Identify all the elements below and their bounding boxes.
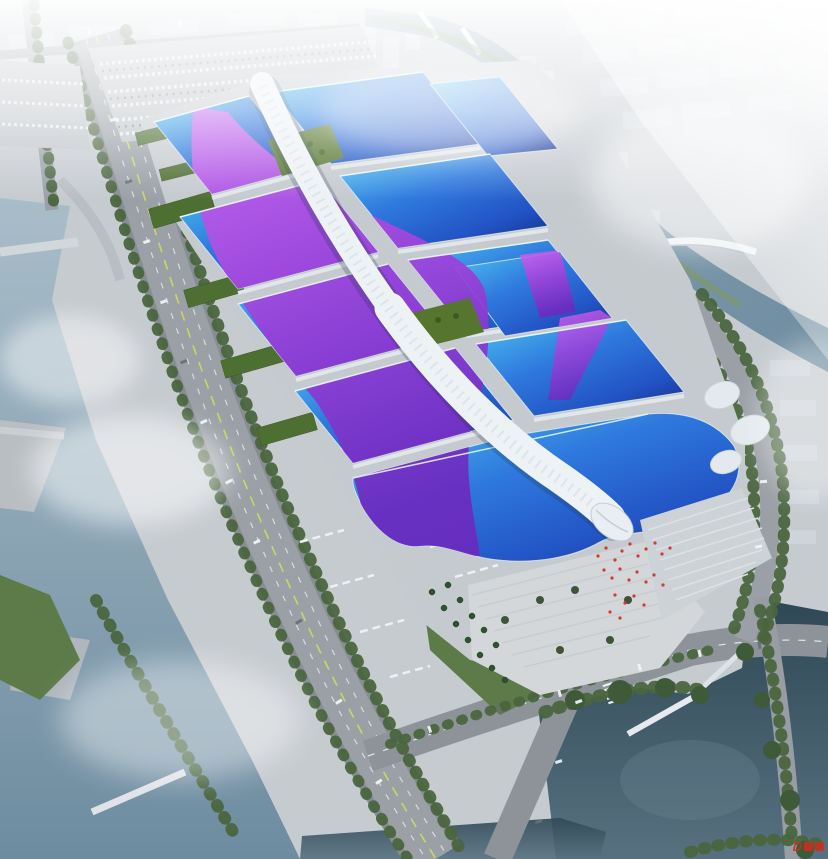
aerial-rendering: D <box>0 0 828 859</box>
watermark-glyph <box>804 842 813 851</box>
watermark: D <box>793 840 824 853</box>
watermark-glyph <box>815 842 824 851</box>
pond-reflection <box>620 740 760 820</box>
watermark-logo: D <box>793 840 802 853</box>
scene-canvas <box>0 0 828 859</box>
